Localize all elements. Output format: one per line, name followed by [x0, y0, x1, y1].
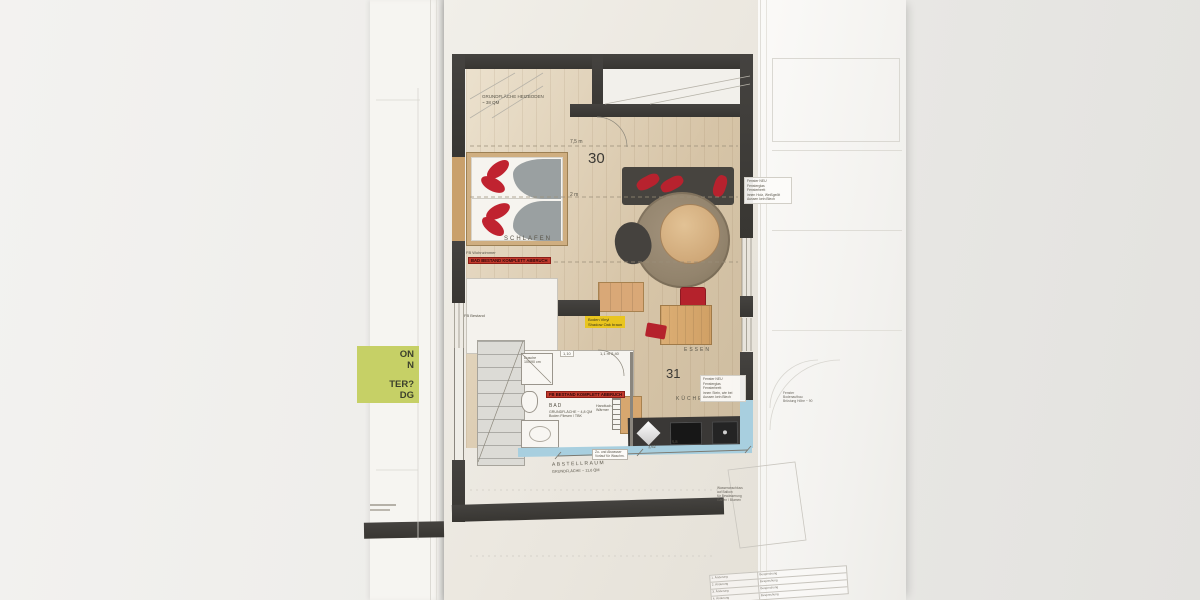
wall-left-thin [454, 348, 464, 460]
appliance [712, 421, 738, 444]
sheet-fold-line [766, 0, 767, 600]
unit-number-30: 30 [588, 150, 605, 169]
appliance-knob [723, 430, 727, 434]
yellow-highlight-note: Boden Vinyl Shadow Oak braun [585, 316, 625, 328]
dimension-bottom-right: 5,8 [672, 439, 678, 444]
floor-plan-photo: GRUNDFLÄCHE HEIZBODEN ~ 38 QM 7,5 m 30 2… [0, 0, 1200, 600]
fb-bestand-note: FB Bestand [464, 313, 485, 318]
heated-floor-note: GRUNDFLÄCHE HEIZBODEN ~ 38 QM [482, 94, 544, 105]
bad-area-note: GRUNDFLÄCHE ~ 4,8 QM Boden Fliesen / TBK [549, 410, 592, 419]
wash-basin [529, 426, 551, 442]
red-note-schlafen: BAD BESTAND KOMPLETT ABBRUCH [468, 257, 551, 264]
faint-line [772, 230, 902, 231]
window-note-kitchen: Fenster NEUFensterglas Fensterbrettinnen… [700, 375, 746, 402]
waste-water-note: Zu- und Abwasser Vorlauf für Waschm. [592, 449, 628, 460]
wall-right-pier [740, 296, 753, 317]
shower-note: Dusche 100/90 cm [524, 356, 541, 365]
wall-right-upper [740, 54, 753, 238]
bed [466, 152, 568, 246]
sink [636, 421, 660, 445]
dimension-top: 7,5 m [570, 139, 583, 145]
sheet-fold-line [430, 0, 431, 600]
faint-elevation-outline [772, 58, 900, 142]
dining-table [660, 305, 712, 345]
towel-warmer [612, 398, 621, 430]
wall-bath-kitchen-divider [630, 352, 633, 448]
dimension-bottom-left: 3,62 [648, 444, 656, 449]
fb-wohnzimmer-note: FB Wohnzimmer [466, 250, 496, 255]
dimension-mid: 2 m [570, 192, 578, 198]
sofa-cushion-red [711, 174, 729, 199]
room-label-essen: ESSEN [684, 347, 711, 353]
unit-number-31: 31 [666, 366, 680, 382]
tiny-text-smudge [370, 504, 396, 506]
faint-line [772, 330, 902, 331]
wall-left-mid [452, 241, 465, 303]
sheet-fold-line [760, 0, 761, 600]
towel-warmer-note: Handtuch- Wärmer [596, 404, 613, 413]
wall-left-upper [452, 54, 465, 157]
balcony-water-note: Wasseranschluss auf Balkon für Bewässeru… [717, 486, 743, 502]
sofa-cushion-red [635, 171, 662, 193]
bed-headboard-wall [452, 157, 465, 241]
room-label-bad: BAD [549, 403, 562, 409]
left-sheet-wall-bar [364, 521, 444, 538]
sheet-fold-line [436, 0, 437, 600]
toilet [521, 391, 538, 413]
window-small-note: Fenster Bodenaufbau Brüstung Höhe ~ 90 [783, 391, 812, 403]
tiny-text-smudge [370, 509, 390, 511]
dimension-chip: 1,10 [560, 350, 574, 357]
wall-hall-stub [558, 300, 600, 316]
green-highlight-note: ON N TER? DG [357, 346, 419, 403]
dimension-bath: 1,1 m 2,40 [600, 351, 619, 356]
wall-right-new-blue [740, 400, 753, 448]
left-plan-sheet [370, 0, 444, 600]
window-note-right: Fenster NEUFensterglas Fensterbrettinnen… [744, 177, 792, 204]
red-note-bad: FB BESTAND KOMPLETT ABBRUCH [546, 391, 625, 398]
faint-line [772, 150, 902, 151]
right-plan-sheet [758, 0, 906, 600]
vanity [521, 420, 559, 448]
wall-interior-top [570, 104, 752, 117]
room-label-schlafen: SCHLAFEN [504, 236, 552, 244]
round-table [660, 204, 720, 264]
neighbor-area-top-right [603, 69, 741, 104]
wardrobe [598, 282, 644, 312]
